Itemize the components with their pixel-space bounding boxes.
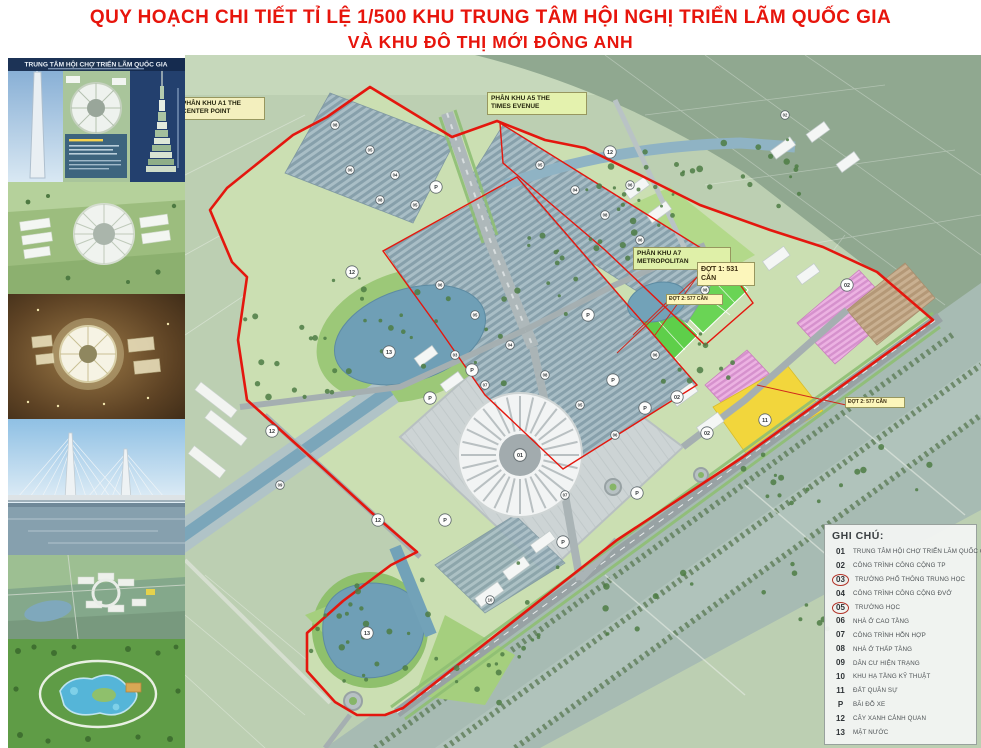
legend-item: PBÃI ĐỖ XE (832, 698, 971, 712)
legend-key: 05 (832, 602, 849, 614)
marker-P: P (439, 514, 451, 526)
svg-text:13: 13 (364, 631, 370, 637)
svg-text:12: 12 (269, 429, 275, 435)
legend-item: 06NHÀ Ở CAO TẦNG (832, 614, 971, 628)
svg-text:P: P (434, 185, 438, 191)
svg-text:04: 04 (508, 343, 513, 348)
marker-09: 09 (276, 481, 285, 490)
tower-montage-art: TRUNG TÂM HỘI CHỢ TRIỂN LÃM QUỐC GIA (8, 58, 185, 182)
marker-08: 08 (701, 286, 710, 295)
marker-08: 08 (601, 211, 610, 220)
svg-text:P: P (470, 368, 474, 374)
legend-item: 04CÔNG TRÌNH CÔNG CỘNG ĐVỞ (832, 587, 971, 601)
marker-10: 10 (486, 596, 495, 605)
svg-text:P: P (643, 406, 647, 412)
svg-text:06: 06 (653, 353, 658, 358)
legend-text: CÔNG TRÌNH CÔNG CỘNG TP (853, 562, 946, 569)
legend-key: 11 (832, 686, 849, 696)
svg-text:06: 06 (348, 168, 353, 173)
zone-label: ĐỢT 2: 577 CĂN (666, 294, 723, 305)
svg-text:02: 02 (783, 113, 788, 118)
svg-text:05: 05 (413, 203, 418, 208)
marker-05: 05 (366, 146, 375, 155)
legend-text: TRƯỜNG PHỔ THÔNG TRUNG HỌC (855, 576, 965, 583)
marker-13: 13 (361, 627, 373, 639)
svg-text:08: 08 (378, 198, 383, 203)
legend-key: 07 (832, 630, 849, 640)
info-panel (65, 134, 127, 178)
legend-item: 11ĐẤT QUÂN SỰ (832, 684, 971, 698)
marker-06: 06 (611, 431, 620, 440)
svg-text:07: 07 (483, 383, 488, 388)
thumbnail-exhibition-aerial-night (8, 294, 185, 419)
legend-key: 04 (832, 589, 849, 599)
thumbnail-column: TRUNG TÂM HỘI CHỢ TRIỂN LÃM QUỐC GIA (8, 58, 185, 748)
svg-text:13: 13 (386, 350, 392, 356)
legend-item: 05TRƯỜNG HỌC (832, 601, 971, 615)
marker-13: 13 (383, 346, 395, 358)
legend-key: 13 (832, 728, 849, 738)
marker-05: 05 (536, 161, 545, 170)
marker-P: P (557, 536, 569, 548)
svg-text:06: 06 (638, 238, 643, 243)
svg-text:02: 02 (844, 283, 850, 289)
legend-item: 10KHU HẠ TẦNG KỸ THUẬT (832, 670, 971, 684)
legend-key: 06 (832, 616, 849, 626)
marker-05: 05 (576, 401, 585, 410)
marker-02: 02 (671, 391, 683, 403)
legend-key: P (832, 700, 849, 710)
svg-text:05: 05 (538, 163, 543, 168)
svg-text:11: 11 (762, 418, 768, 424)
svg-text:05: 05 (368, 148, 373, 153)
thumbnail-tower-montage: TRUNG TÂM HỘI CHỢ TRIỂN LÃM QUỐC GIA (8, 58, 185, 182)
svg-text:02: 02 (704, 431, 710, 437)
svg-text:P: P (635, 491, 639, 497)
marker-11: 11 (759, 414, 771, 426)
legend-item: 07CÔNG TRÌNH HỖN HỢP (832, 628, 971, 642)
exhibition-aerial-day-art (8, 182, 185, 294)
legend-title: GHI CHÚ: (832, 530, 971, 542)
legend-key: 01 (832, 547, 849, 557)
zone-label: ĐỢT 1: 531 CĂN (697, 262, 755, 286)
svg-text:12: 12 (349, 270, 355, 276)
legend-panel: GHI CHÚ: 01TRUNG TÂM HỘI CHỢ TRIỂN LÃM Q… (824, 524, 977, 745)
marker-05: 05 (471, 311, 480, 320)
water-park-aerial-art (8, 639, 185, 748)
legend-text: NHÀ Ở CAO TẦNG (853, 618, 909, 625)
legend-item: 13MẶT NƯỚC (832, 726, 971, 740)
marker-P: P (631, 487, 643, 499)
legend-item: 09DÂN CƯ HIỆN TRẠNG (832, 656, 971, 670)
legend-text: CÔNG TRÌNH CÔNG CỘNG ĐVỞ (853, 590, 952, 597)
marker-04: 04 (506, 341, 515, 350)
legend-key: 08 (832, 644, 849, 654)
svg-text:P: P (443, 518, 447, 524)
exhibition-aerial-night-art (8, 294, 185, 419)
svg-text:06: 06 (628, 183, 633, 188)
svg-text:06: 06 (613, 433, 618, 438)
legend-key: 09 (832, 658, 849, 668)
marker-06: 06 (346, 166, 355, 175)
legend-text: TRƯỜNG HỌC (855, 604, 900, 611)
cable-stayed-bridge-art (8, 419, 185, 555)
svg-text:08: 08 (603, 213, 608, 218)
marker-P: P (582, 309, 594, 321)
svg-text:12: 12 (607, 150, 613, 156)
marker-06: 06 (651, 351, 660, 360)
marker-12: 12 (266, 425, 278, 437)
urban-area-aerial-art (8, 555, 185, 639)
marker-04: 04 (571, 186, 580, 195)
legend-key: 03 (832, 574, 849, 586)
marker-P: P (607, 374, 619, 386)
thumbnail-water-park-aerial (8, 639, 185, 748)
svg-text:02: 02 (674, 395, 680, 401)
marker-12: 12 (346, 266, 358, 278)
marker-06: 06 (626, 181, 635, 190)
planning-poster: QUY HOẠCH CHI TIẾT TỈ LỆ 1/500 KHU TRUNG… (0, 0, 981, 748)
legend-item: 01TRUNG TÂM HỘI CHỢ TRIỂN LÃM QUỐC GIA (832, 545, 971, 559)
legend-key: 02 (832, 561, 849, 571)
marker-02: 02 (841, 279, 853, 291)
svg-text:04: 04 (573, 188, 578, 193)
svg-text:06: 06 (438, 283, 443, 288)
svg-text:05: 05 (578, 403, 583, 408)
svg-text:08: 08 (703, 288, 708, 293)
poster-title: QUY HOẠCH CHI TIẾT TỈ LỆ 1/500 KHU TRUNG… (0, 7, 981, 53)
marker-P: P (639, 402, 651, 414)
legend-text: MẶT NƯỚC (853, 729, 888, 736)
svg-text:08: 08 (333, 123, 338, 128)
marker-04: 04 (391, 171, 400, 180)
thumbnail-urban-area-aerial (8, 555, 185, 639)
title-line-2: VÀ KHU ĐÔ THỊ MỚI ĐÔNG ANH (0, 32, 981, 53)
marker-06: 06 (636, 236, 645, 245)
svg-text:10: 10 (488, 598, 493, 603)
svg-text:04: 04 (393, 173, 398, 178)
legend-item: 12CÂY XANH CẢNH QUAN (832, 712, 971, 726)
zone-label: PHÂN KHU A1 THE CENTER POINT (178, 97, 265, 120)
zone-label: ĐỢT 2: 577 CĂN (845, 397, 905, 408)
thumbnail-cable-stayed-bridge (8, 419, 185, 555)
legend-rows: 01TRUNG TÂM HỘI CHỢ TRIỂN LÃM QUỐC GIA02… (832, 545, 971, 739)
svg-text:05: 05 (473, 313, 478, 318)
svg-text:12: 12 (375, 518, 381, 524)
marker-02: 02 (781, 111, 790, 120)
svg-text:P: P (428, 396, 432, 402)
marker-08: 08 (331, 121, 340, 130)
marker-P: P (430, 181, 442, 193)
svg-text:09: 09 (278, 483, 283, 488)
svg-text:01: 01 (517, 453, 523, 459)
marker-12: 12 (604, 146, 616, 158)
marker-P: P (424, 392, 436, 404)
marker-03: 03 (451, 351, 460, 360)
legend-item: 03TRƯỜNG PHỔ THÔNG TRUNG HỌC (832, 573, 971, 587)
legend-text: DÂN CƯ HIỆN TRẠNG (853, 660, 920, 667)
svg-text:08: 08 (543, 373, 548, 378)
marker-P: P (466, 364, 478, 376)
zone-label: PHÂN KHU A5 THE TIMES EVENUE (487, 92, 587, 115)
marker-08: 08 (541, 371, 550, 380)
marker-02: 02 (701, 427, 713, 439)
svg-text:P: P (586, 313, 590, 319)
svg-text:03: 03 (453, 353, 458, 358)
marker-07: 07 (481, 381, 490, 390)
svg-text:P: P (561, 540, 565, 546)
legend-text: BÃI ĐỖ XE (853, 701, 885, 708)
marker-01: 01 (514, 449, 526, 461)
thumbnail-exhibition-aerial-day (8, 182, 185, 294)
marker-08: 08 (376, 196, 385, 205)
legend-text: NHÀ Ở THẤP TẦNG (853, 646, 912, 653)
legend-item: 02CÔNG TRÌNH CÔNG CỘNG TP (832, 559, 971, 573)
legend-item: 08NHÀ Ở THẤP TẦNG (832, 642, 971, 656)
legend-key: 10 (832, 672, 849, 682)
marker-06: 06 (436, 281, 445, 290)
legend-text: ĐẤT QUÂN SỰ (853, 687, 898, 694)
marker-07: 07 (561, 491, 570, 500)
legend-text: KHU HẠ TẦNG KỸ THUẬT (853, 673, 930, 680)
title-line-1: QUY HOẠCH CHI TIẾT TỈ LỆ 1/500 KHU TRUNG… (0, 7, 981, 29)
svg-text:P: P (611, 378, 615, 384)
legend-text: CÔNG TRÌNH HỖN HỢP (853, 632, 926, 639)
marker-12: 12 (372, 514, 384, 526)
svg-text:07: 07 (563, 493, 568, 498)
legend-text: TRUNG TÂM HỘI CHỢ TRIỂN LÃM QUỐC GIA (853, 548, 981, 555)
legend-text: CÂY XANH CẢNH QUAN (853, 715, 926, 722)
marker-05: 05 (411, 201, 420, 210)
legend-key: 12 (832, 714, 849, 724)
